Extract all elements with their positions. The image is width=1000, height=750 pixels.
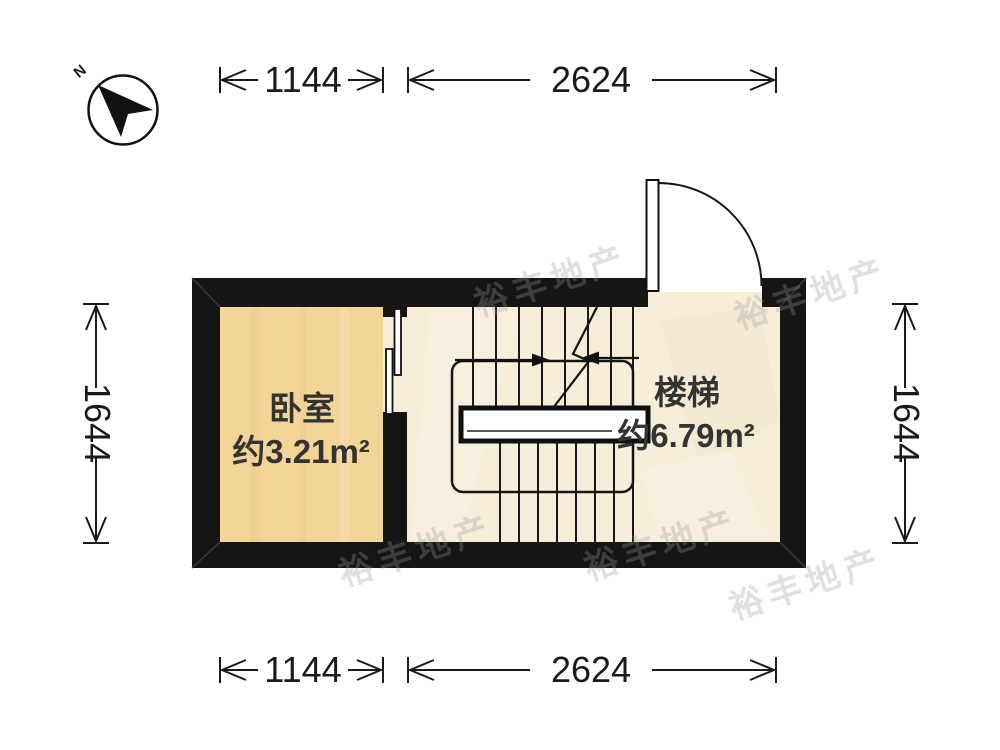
bedroom-name: 卧室	[269, 390, 335, 427]
floor-plan: 卧室 约3.21m² 楼梯 约6.79m² 1144 2624	[0, 0, 1000, 750]
dim-value: 1144	[264, 59, 341, 100]
dim-value: 2624	[551, 59, 631, 100]
entry-door-swing-arc	[659, 183, 762, 286]
stairs-area: 约6.79m²	[617, 417, 755, 454]
compass-n-label: N	[70, 62, 89, 82]
dim-right-1644: 1644	[886, 304, 927, 543]
dim-value: 1644	[886, 383, 927, 463]
dim-bottom-2624: 2624	[408, 649, 776, 690]
sliding-door-panel-right	[395, 309, 402, 375]
dim-value: 1644	[77, 383, 118, 463]
stairs-name: 楼梯	[654, 374, 720, 411]
floor-plan-drawing: 卧室 约3.21m² 楼梯 约6.79m² 1144 2624	[0, 0, 1000, 750]
entry-door-leaf	[647, 180, 659, 291]
dim-top-2624: 2624	[408, 59, 776, 100]
dim-left-1644: 1644	[77, 304, 118, 543]
dim-bottom-1144: 1144	[220, 649, 383, 690]
wall-left	[192, 278, 220, 568]
wall-interior	[383, 412, 407, 542]
dim-value: 1144	[264, 649, 341, 690]
dim-top-1144: 1144	[220, 59, 383, 100]
dim-value: 2624	[551, 649, 631, 690]
watermark-text: 裕丰地产	[730, 252, 894, 338]
bedroom-area: 约3.21m²	[232, 433, 370, 470]
sliding-door-panel-left	[386, 349, 393, 414]
compass: N	[70, 62, 157, 145]
